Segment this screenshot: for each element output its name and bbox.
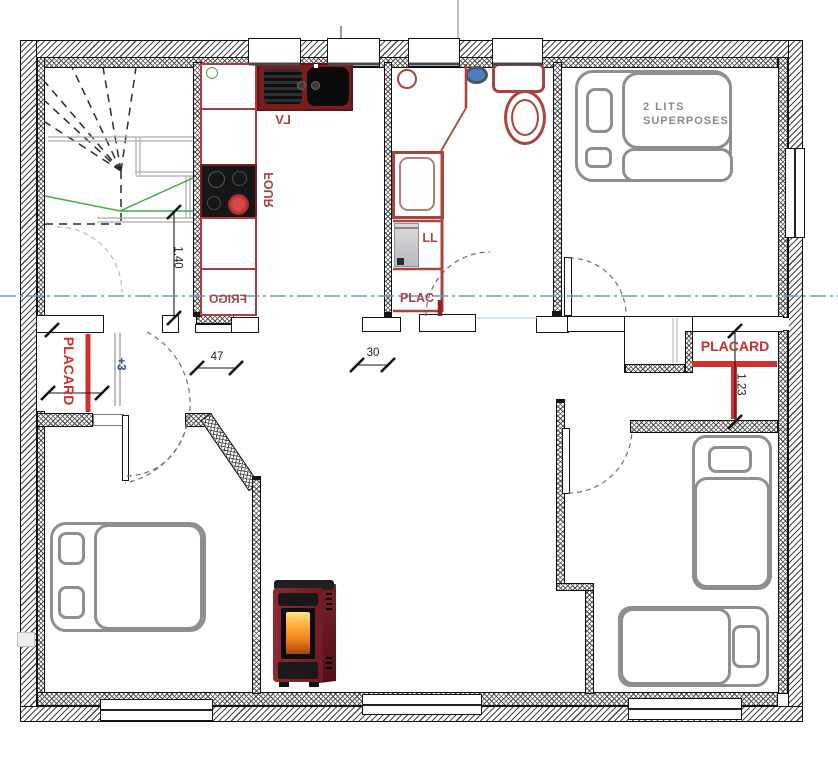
label-bath-closet: PLAC — [396, 290, 438, 305]
washing-machine — [394, 223, 419, 267]
door-panel-bedroom-bl — [93, 414, 124, 426]
bunkbed-pillow-lower — [585, 147, 612, 168]
floor-plan: LV FOUR FRIGO PLAC LL 2 LITS SUPERPOSES … — [0, 0, 838, 772]
dim-stair-width: 1.40 — [171, 230, 186, 286]
kitchen-sink-unit — [257, 63, 353, 111]
arc-bunkroom-door — [569, 258, 626, 315]
label-bunk-line1: 2 LITS — [643, 100, 723, 113]
partition-bath-bunkroom — [553, 62, 562, 316]
label-closet-right: PLACARD — [700, 338, 770, 354]
stove-glass — [281, 608, 315, 659]
wall-cap-5 — [252, 476, 261, 480]
wall-cap-2 — [384, 312, 392, 317]
kitchen-cooktop — [200, 164, 257, 220]
bunkbed-lower-mattress — [622, 148, 733, 182]
wall-cap-4 — [556, 399, 565, 403]
door-swing-arcs — [57, 227, 632, 493]
bathroom-basin-round — [397, 69, 417, 89]
stove-vent — [326, 657, 332, 671]
dim-bath-opening: 30 — [360, 346, 386, 360]
bed-double-pillow-1 — [58, 532, 85, 565]
wall-left-outer — [20, 40, 37, 722]
sink-dot — [314, 64, 318, 68]
kitchen-counter-3 — [200, 217, 257, 271]
label-dishwasher: LV — [263, 111, 303, 127]
stove-front-bottom — [278, 662, 318, 679]
wall-left-inner-upper — [37, 57, 45, 317]
arc-bedroom-bl-door — [126, 415, 187, 476]
door-leaf-bedroom-bl — [122, 415, 129, 481]
arc-bedroom-br-door — [568, 429, 632, 493]
kitchen-point-marker — [206, 67, 218, 79]
stove-front-top — [278, 593, 318, 606]
label-washer: LL — [418, 230, 442, 245]
threshold-kitchen-b — [231, 317, 259, 333]
stove-vent — [326, 593, 332, 611]
wall-right-inner-lower — [778, 330, 788, 694]
faucet-icon — [297, 81, 306, 90]
faucet-icon — [311, 81, 320, 90]
bed-single-b-mattress — [620, 608, 731, 685]
door-leaf-bunkroom — [564, 257, 572, 316]
label-oven: FOUR — [261, 162, 277, 218]
window-bottom-3 — [628, 698, 742, 720]
closet-box-wall-right — [685, 331, 693, 373]
burner-icon — [232, 171, 247, 186]
window-top-3 — [408, 38, 460, 67]
bed-single-a-mattress — [694, 477, 770, 588]
door-leaf-bedroom-br — [562, 428, 570, 494]
pellet-stove — [271, 579, 341, 689]
bunkbed-pillow-upper — [586, 88, 613, 133]
shower-tray — [392, 151, 444, 219]
burner-hot-icon — [228, 194, 249, 215]
closet-box-wall-bottom — [625, 364, 685, 373]
door-frame-bunkroom — [536, 316, 569, 333]
wall-bedroom-bl-diagonal — [200, 413, 259, 491]
threshold-bath-door — [419, 314, 476, 332]
stove-foot — [279, 682, 289, 687]
label-fridge: FRIGO — [203, 291, 253, 306]
door-frame-hall-mid — [162, 315, 179, 333]
dim-hall-opening: 47 — [201, 350, 233, 364]
flame-icon — [286, 612, 310, 654]
stair-green-guides — [45, 178, 193, 211]
arc-stair-door — [57, 227, 122, 292]
label-bunk-line2: SUPERPOSES — [643, 114, 733, 127]
bathroom-hand-basin — [465, 66, 488, 84]
window-bottom-1 — [100, 699, 213, 721]
stair-landing-lines — [48, 137, 193, 222]
stair-treads — [45, 67, 136, 224]
threshold-kitchen-a — [195, 324, 234, 333]
dim-right-closet: 1.23 — [734, 358, 749, 412]
burner-icon — [208, 171, 225, 188]
bed-double-pillow-2 — [58, 586, 85, 619]
wall-bedroom-bl-top-a — [37, 413, 93, 427]
wall-right-outer — [788, 40, 803, 722]
window-right — [785, 148, 805, 238]
burner-icon — [207, 196, 221, 210]
wall-bedroom-br-top — [630, 420, 778, 433]
wall-left-inner-lower — [37, 411, 45, 694]
arc-bath-door — [426, 252, 490, 316]
arc-entry-door — [125, 332, 190, 483]
bed-single-a-pillow — [708, 446, 752, 473]
label-closet-left: PLACARD — [61, 332, 77, 410]
exterior-marker — [17, 632, 35, 647]
toilet-tank — [492, 63, 545, 93]
bed-double-mattress — [94, 524, 203, 630]
threshold-bath-left — [362, 317, 401, 332]
bed-single-b-pillow — [732, 625, 760, 668]
kitchen-counter-2 — [200, 108, 257, 167]
partition-kitchen-bath — [384, 62, 392, 316]
dim-level-mark: +3 — [114, 351, 128, 378]
stove-foot — [309, 682, 319, 687]
wall-bedroom-bl-right — [252, 479, 261, 694]
wall-living-bedroom-br-lower — [585, 590, 594, 694]
door-frame-hall-left — [36, 315, 104, 333]
window-bottom-2 — [362, 694, 482, 715]
wall-band-gap — [778, 318, 789, 330]
wall-cap-3 — [552, 311, 562, 317]
toilet-bowl-inner — [511, 99, 539, 136]
